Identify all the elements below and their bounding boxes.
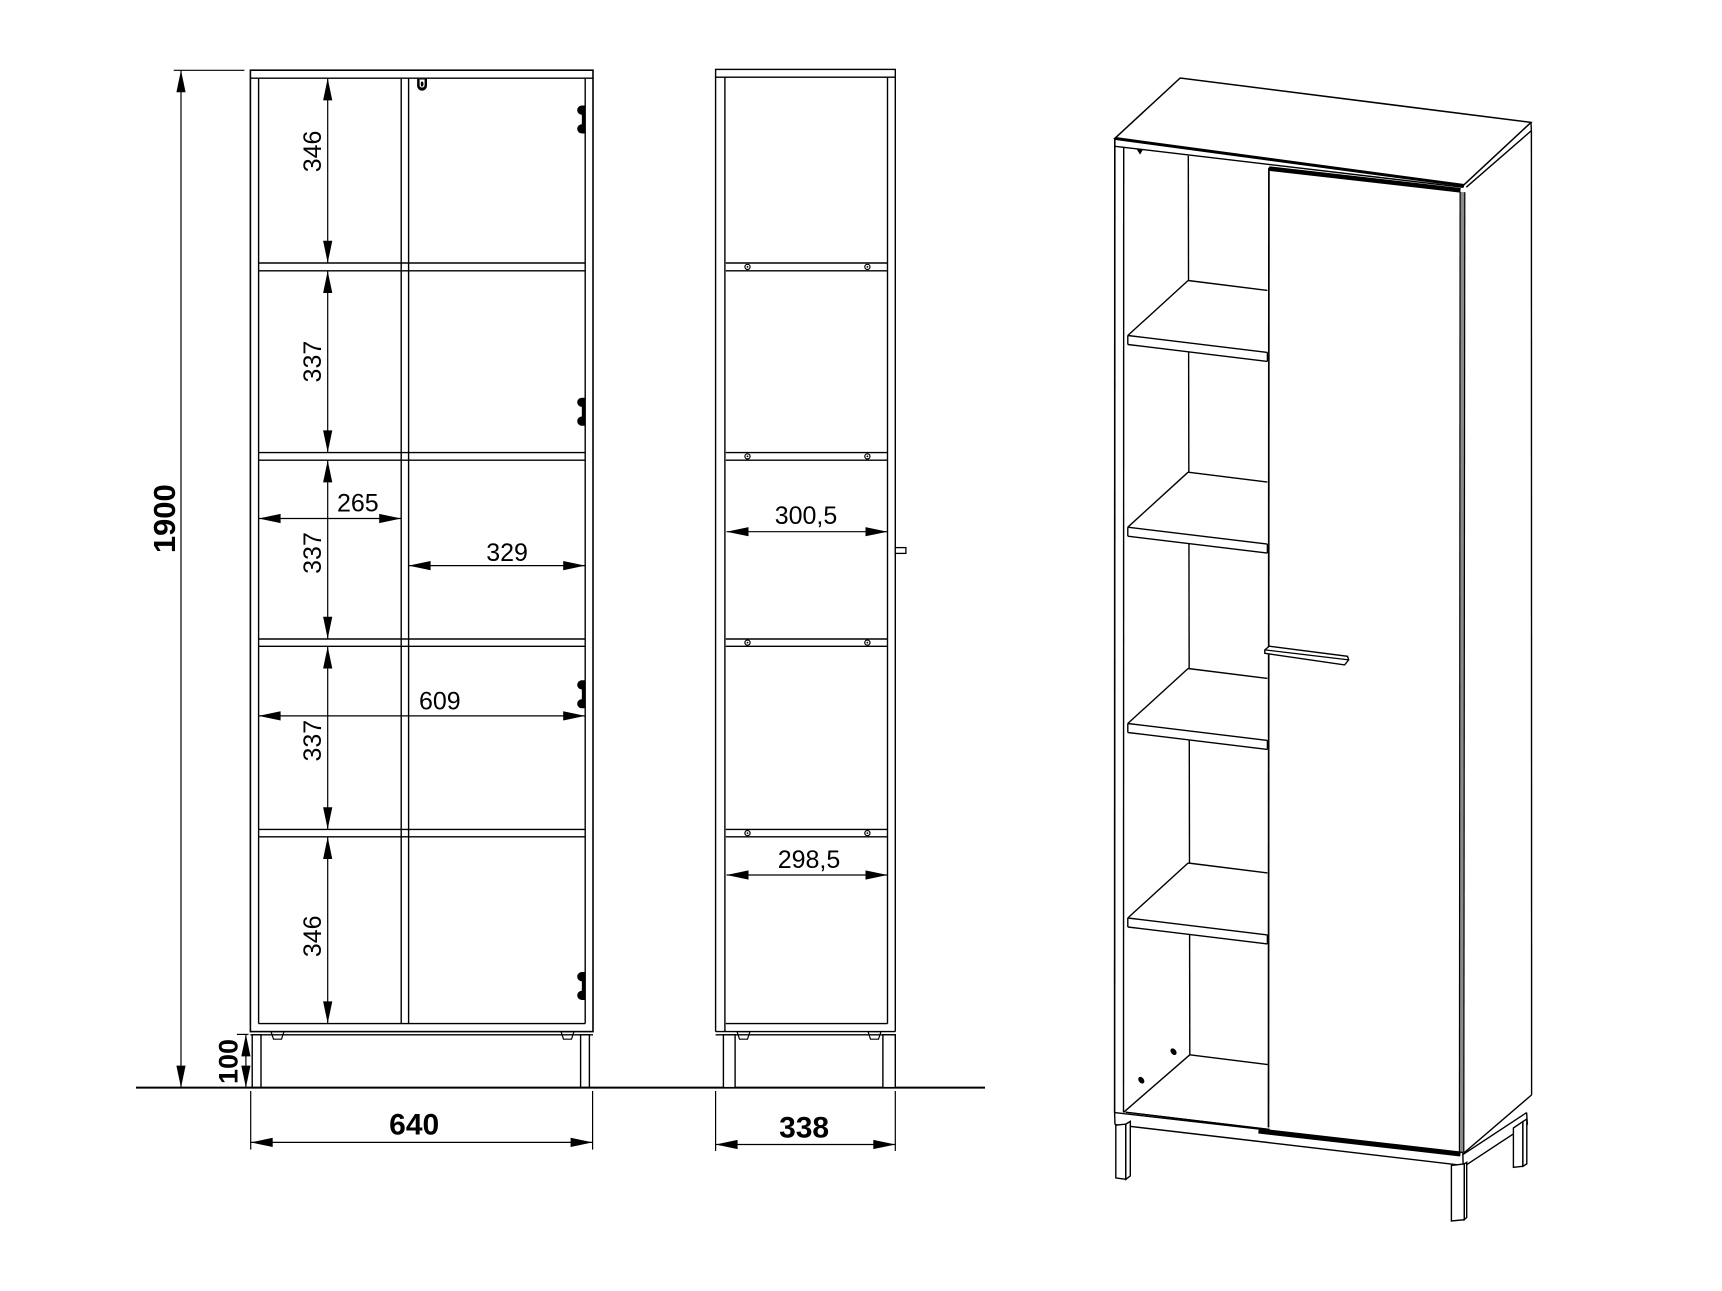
svg-text:609: 609 — [419, 687, 461, 715]
svg-text:300,5: 300,5 — [775, 502, 838, 530]
svg-text:337: 337 — [299, 720, 327, 762]
svg-text:640: 640 — [389, 1109, 439, 1142]
svg-text:265: 265 — [337, 490, 379, 518]
svg-text:337: 337 — [299, 341, 327, 383]
svg-text:1900: 1900 — [147, 484, 182, 553]
svg-text:338: 338 — [779, 1112, 829, 1145]
svg-text:298,5: 298,5 — [778, 846, 841, 874]
svg-text:100: 100 — [214, 1039, 244, 1084]
svg-text:337: 337 — [299, 532, 327, 574]
svg-text:346: 346 — [299, 915, 327, 957]
svg-text:346: 346 — [299, 131, 327, 173]
svg-text:329: 329 — [486, 539, 528, 567]
